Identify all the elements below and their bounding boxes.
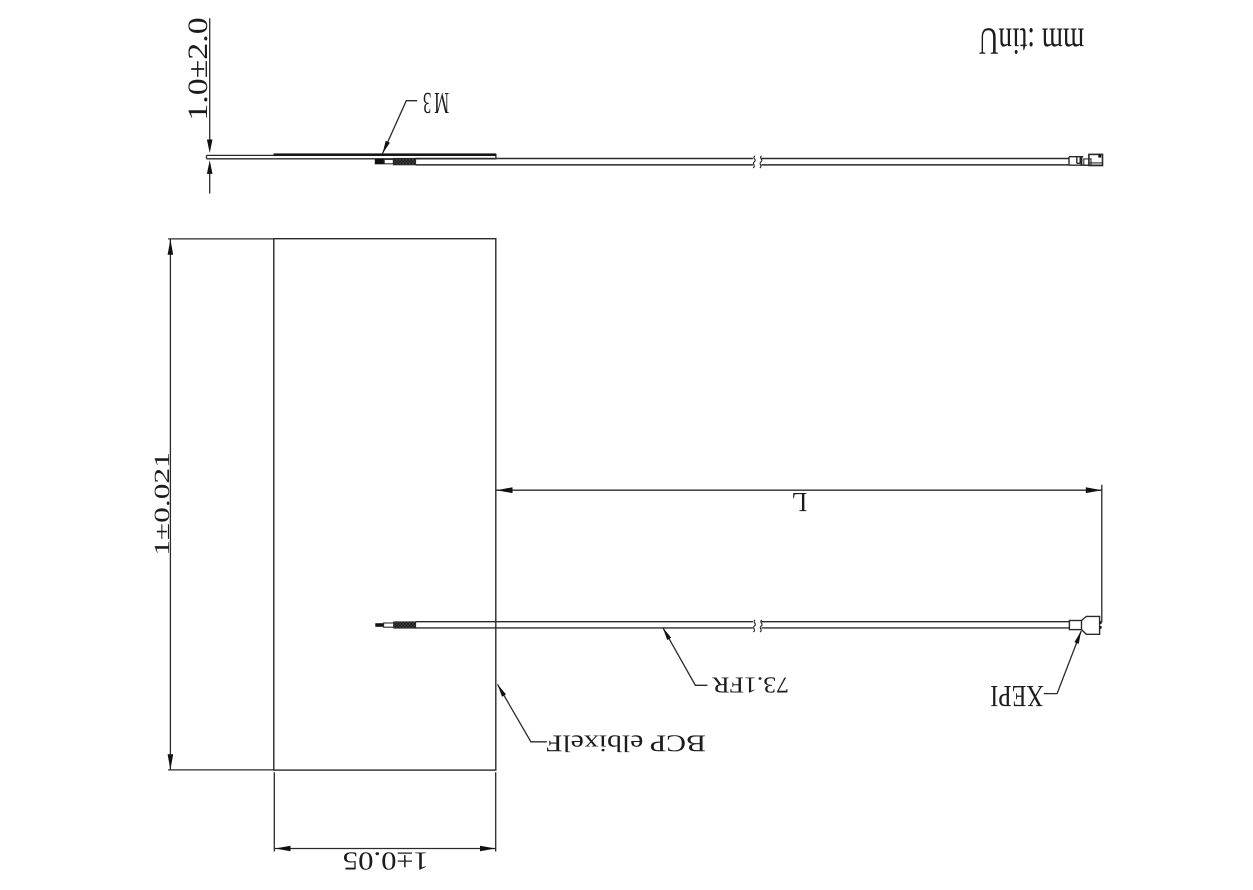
svg-text:1.0±2.0: 1.0±2.0 bbox=[183, 17, 214, 120]
svg-text:73.1FR: 73.1FR bbox=[711, 672, 789, 697]
svg-text:L: L bbox=[792, 487, 808, 518]
svg-text:1±0.021: 1±0.021 bbox=[150, 452, 174, 556]
svg-text:1±0.05: 1±0.05 bbox=[343, 846, 429, 875]
svg-text:XEPI: XEPI bbox=[990, 679, 1043, 713]
svg-text:mm :tinU: mm :tinU bbox=[979, 20, 1085, 62]
svg-text:M3: M3 bbox=[420, 86, 449, 120]
svg-text:BCP elbixelF: BCP elbixelF bbox=[546, 729, 706, 755]
